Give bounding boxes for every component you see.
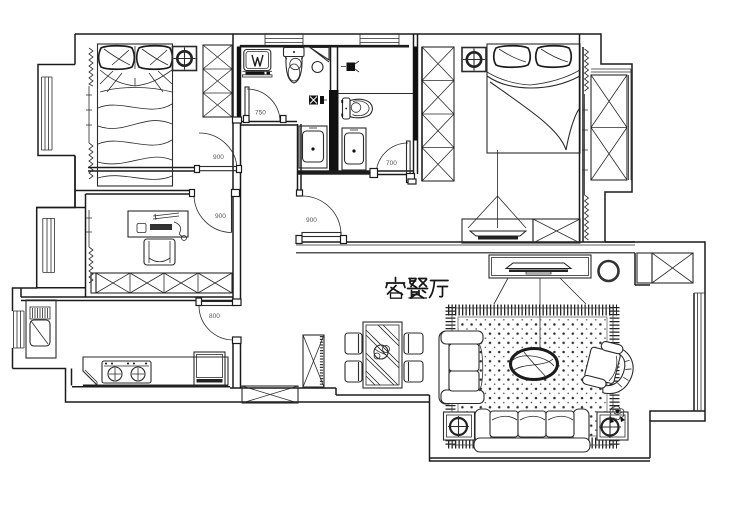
svg-text:750: 750 bbox=[255, 110, 266, 117]
svg-text:700: 700 bbox=[386, 160, 397, 167]
svg-text:900: 900 bbox=[213, 154, 224, 161]
svg-text:800: 800 bbox=[209, 313, 220, 320]
svg-text:900: 900 bbox=[215, 213, 226, 220]
svg-text:900: 900 bbox=[306, 217, 317, 224]
